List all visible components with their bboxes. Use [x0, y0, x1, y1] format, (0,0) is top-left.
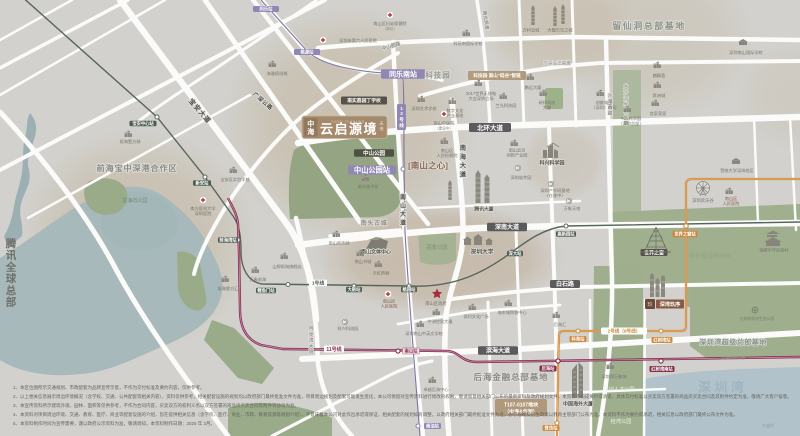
svg-text:南山区妇幼保健院: 南山区妇幼保健院	[373, 20, 407, 27]
svg-text:未来: 未来	[379, 120, 384, 133]
svg-text:南山文体中心: 南山文体中心	[361, 249, 391, 256]
svg-text:合盛桥: 合盛桥	[762, 422, 774, 428]
svg-text:1号线: 1号线	[312, 280, 324, 287]
svg-text:中洲控股大厦: 中洲控股大厦	[427, 318, 452, 325]
svg-text:世界之窗: 世界之窗	[644, 249, 664, 256]
svg-text:深圳南山中英文学校: 深圳南山中英文学校	[405, 330, 444, 337]
svg-text:天虹购物: 天虹购物	[373, 270, 390, 277]
svg-text:世界之窗站: 世界之窗站	[674, 231, 696, 238]
svg-text:2、以上相关信息展示周边环境概况（含学校、交通、公共配套等相: 2、以上相关信息展示周边环境概况（含学校、交通、公共配套等相关内容），资料仅供参…	[13, 393, 792, 400]
svg-text:后海金融总部基地: 后海金融总部基地	[473, 371, 548, 382]
svg-text:同乐南站: 同乐南站	[389, 70, 417, 79]
svg-text:宜家家居: 宜家家居	[650, 110, 667, 117]
svg-text:锦绣中华民俗村: 锦绣中华民俗村	[759, 247, 789, 254]
svg-text:暨南大学深圳校区: 暨南大学深圳校区	[720, 167, 754, 174]
svg-text:腾讯大厦: 腾讯大厦	[473, 206, 493, 213]
svg-text:高新园站: 高新园站	[557, 231, 575, 238]
svg-text:5、本资料制作时间为宣传需要，谨以政府公示资料为准，敬请周知: 5、本资料制作时间为宣传需要，谨以政府公示资料为准，敬请周知，本资料制作日期：2…	[13, 420, 215, 427]
svg-text:登良站: 登良站	[544, 425, 559, 432]
svg-text:前海宝中深港合作区: 前海宝中深港合作区	[97, 163, 178, 173]
svg-text:广深沿江高速: 广深沿江高速	[543, 60, 571, 67]
svg-text:前海壹方汇: 前海壹方汇	[218, 285, 239, 292]
svg-text:万象前海: 万象前海	[250, 276, 268, 283]
svg-text:科兴科学园: 科兴科学园	[538, 160, 564, 167]
svg-text:欧洲城: 欧洲城	[653, 92, 666, 99]
svg-text:月亮湾大道: 月亮湾大道	[309, 326, 314, 355]
svg-text:科苑南国际学校: 科苑南国际学校	[453, 40, 483, 47]
svg-text:红树湾站: 红树湾站	[653, 337, 671, 344]
svg-text:人民医院: 人民医院	[381, 303, 399, 310]
svg-text:前海石公园: 前海石公园	[122, 197, 147, 204]
svg-text:麒麟荟: 麒麟荟	[653, 72, 666, 79]
svg-text:大新站: 大新站	[348, 286, 362, 293]
svg-text:万象天地: 万象天地	[564, 205, 582, 212]
svg-text:T107-0107地块: T107-0107地块	[504, 402, 539, 409]
svg-text:桃园站: 桃园站	[403, 286, 417, 293]
svg-text:后海站: 后海站	[542, 365, 556, 372]
svg-text:鹏运大厦: 鹏运大厦	[525, 84, 542, 91]
svg-text:深圳湾超级总部基地: 深圳湾超级总部基地	[699, 338, 767, 347]
svg-text:前海湾站: 前海湾站	[219, 237, 237, 244]
svg-text:同乐站: 同乐站	[260, 6, 274, 13]
svg-text:科技园·南山“硅谷”智链: 科技园·南山“硅谷”智链	[473, 72, 521, 79]
svg-text:卓越后海中心: 卓越后海中心	[423, 386, 449, 393]
svg-text:南头城学校: 南头城学校	[358, 183, 380, 190]
svg-text:北环大道: 北环大道	[477, 123, 504, 132]
svg-text:华侨城湿地公园: 华侨城湿地公园	[689, 252, 731, 260]
svg-text:云启源境: 云启源境	[320, 122, 378, 137]
svg-text:留仙洞总部基地: 留仙洞总部基地	[612, 20, 686, 31]
svg-text:后海汇: 后海汇	[554, 321, 567, 328]
svg-text:人民检察院: 人民检察院	[437, 152, 459, 159]
svg-text:鲤鱼门站: 鲤鱼门站	[256, 287, 275, 294]
svg-text:深圳艺术学校: 深圳艺术学校	[411, 105, 437, 112]
svg-text:科技园: 科技园	[425, 70, 451, 80]
svg-text:产业基地: 产业基地	[447, 112, 465, 119]
svg-text:中山公园站: 中山公园站	[354, 166, 391, 175]
svg-text:腾讯全球总部: 腾讯全球总部	[5, 237, 17, 309]
svg-text:玖: 玖	[647, 301, 652, 308]
svg-text:科苑站: 科苑站	[572, 336, 586, 343]
svg-text:保利文化广场: 保利文化广场	[463, 313, 488, 320]
svg-text:中国海外大厦: 中国海外大厦	[563, 401, 594, 408]
svg-text:深圳人才公园: 深圳人才公园	[603, 385, 634, 393]
svg-text:创新产业园: 创新产业园	[507, 151, 528, 158]
svg-text:深大站: 深大站	[509, 250, 523, 257]
svg-text:4、本资料对项目周边环境、交通、教育、医疗、商业等配套设施的: 4、本资料对项目周边环境、交通、教育、医疗、商业等配套设施的介绍，旨在提供相关信…	[13, 411, 738, 418]
svg-text:南山书城: 南山书城	[355, 258, 373, 265]
svg-text:前海壹方城: 前海壹方城	[120, 138, 142, 145]
svg-text:南山区政府: 南山区政府	[425, 300, 447, 307]
svg-text:南山欢乐颂: 南山欢乐颂	[329, 240, 351, 247]
svg-text:万科云城: 万科云城	[523, 27, 541, 34]
svg-text:红树湾南站: 红树湾南站	[651, 366, 673, 373]
svg-text:中海: 中海	[307, 119, 314, 136]
svg-text:南山站: 南山站	[405, 348, 419, 355]
svg-text:（在建中）: （在建中）	[545, 192, 566, 199]
svg-text:南油站: 南油站	[426, 423, 440, 430]
svg-text:大疆天空之城: 大疆天空之城	[547, 27, 573, 34]
svg-text:山姆前海旗舰店: 山姆前海旗舰店	[272, 263, 301, 270]
svg-text:南实荔园丁学校: 南实荔园丁学校	[347, 97, 381, 104]
svg-text:（深圳）公司: （深圳）公司	[591, 104, 616, 111]
svg-text:白石路: 白石路	[556, 280, 575, 288]
svg-text:（建设中）: （建设中）	[435, 126, 453, 131]
svg-text:1、本区位图所示交通规划、市政配套为品牌宣传示意，不作为交付: 1、本区位图所示交通规划、市政配套为品牌宣传示意，不作为交付标准及要约内容，仅供…	[13, 384, 205, 391]
svg-text:宝安中心站: 宝安中心站	[132, 120, 154, 127]
svg-text:11号线: 11号线	[326, 346, 341, 353]
svg-text:（深圳总部）: （深圳总部）	[618, 120, 643, 127]
svg-text:红树林海滨生态公园: 红树林海滨生态公园	[740, 316, 774, 321]
svg-text:3、本宣传资料所示建筑外观、园林、面积等仅供参考，不作为合同: 3、本宣传资料所示建筑外观、园林、面积等仅供参考，不作为合同内容，买卖双方的权利…	[13, 402, 299, 409]
svg-text:滨海大道: 滨海大道	[486, 347, 510, 355]
svg-text:深圳市第六人民医院: 深圳市第六人民医院	[339, 37, 378, 44]
svg-text:深圳医院: 深圳医院	[195, 210, 213, 217]
svg-text:新安站: 新安站	[196, 180, 210, 187]
svg-text:南山中医院: 南山中医院	[434, 120, 456, 127]
svg-text:宝安区实验学校: 宝安区实验学校	[220, 176, 250, 183]
svg-text:人民医院: 人民医院	[723, 200, 741, 207]
svg-text:中山公园: 中山公园	[363, 149, 386, 157]
svg-text:深圳南山国际学校: 深圳南山国际学校	[729, 49, 763, 56]
svg-text:深圳欢乐谷: 深圳欢乐谷	[692, 197, 714, 204]
svg-text:（新址）: （新址）	[383, 26, 397, 31]
svg-text:2号线（8号线）: 2号线（8号线）	[608, 328, 641, 335]
svg-text:桂湾公园: 桂湾公园	[611, 417, 632, 425]
svg-text:滨海休闲公园: 滨海休闲公园	[721, 354, 745, 360]
svg-text:海岸城购物中心: 海岸城购物中心	[497, 309, 527, 316]
svg-text:深圳湾: 深圳湾	[698, 380, 748, 395]
svg-text:深南大道: 深南大道	[495, 223, 519, 231]
svg-text:深圳湾万象城: 深圳湾万象城	[601, 373, 627, 380]
svg-text:海雅缤纷城: 海雅缤纷城	[267, 70, 289, 77]
svg-text:深圳大学: 深圳大学	[470, 248, 493, 256]
svg-text:大厦: 大厦	[543, 104, 551, 111]
svg-text:大会深圳会场: 大会深圳会场	[468, 95, 493, 102]
svg-text:荔香公园: 荔香公园	[427, 243, 448, 251]
svg-text:兰光科技园: 兰光科技园	[496, 102, 517, 109]
svg-text:深湾玖序: 深湾玖序	[660, 300, 682, 308]
svg-text:科兴科创园: 科兴科创园	[338, 325, 359, 332]
svg-text:深圳软件园: 深圳软件园	[511, 174, 532, 181]
svg-text:桃源站: 桃源站	[301, 49, 315, 56]
svg-text:[南山之心]: [南山之心]	[408, 159, 448, 170]
svg-text:南头古城: 南头古城	[361, 219, 388, 227]
